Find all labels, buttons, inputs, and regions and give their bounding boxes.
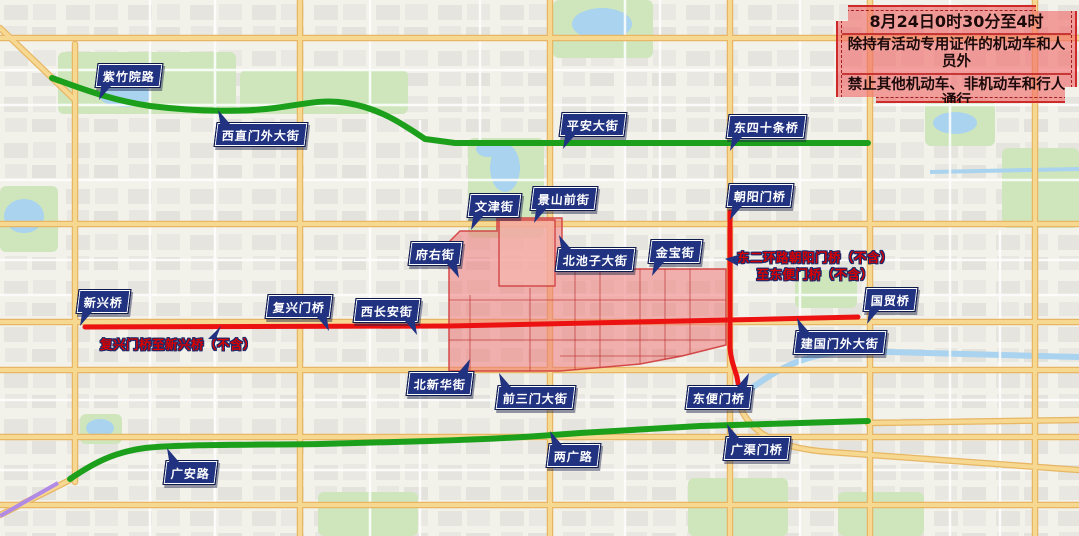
restriction-note-text: 至东便门桥（不含） — [737, 267, 893, 284]
road-label: 建国门外大街 — [794, 330, 886, 355]
forbidden-city-outline — [499, 220, 555, 286]
notice-line-2: 除持有活动专用证件的机动车和人员外 — [842, 33, 1071, 72]
road-label: 复兴门桥 — [266, 294, 332, 319]
road-label: 文津街 — [468, 193, 521, 218]
road-label: 两广路 — [547, 443, 600, 468]
road-label: 府右街 — [409, 241, 462, 266]
road-label: 景山前街 — [531, 186, 597, 211]
restriction-note-east-2nd-ring: 东二环路朝阳门桥（不含） 至东便门桥（不含） — [737, 250, 893, 284]
road-label: 新兴桥 — [77, 289, 130, 314]
road-label: 紫竹院路 — [96, 63, 162, 88]
restriction-note-text: 东二环路朝阳门桥（不含） — [737, 250, 893, 267]
road-label: 北新华街 — [407, 371, 473, 396]
notice-banner: 8月24日0时30分至4时 除持有活动专用证件的机动车和人员外 禁止其他机动车、… — [836, 5, 1077, 103]
restriction-note-text: 复兴门桥至新兴桥（不含） — [100, 337, 256, 354]
traffic-restriction-map: 紫竹院路 西直门外大街 平安大街 东四十条桥 朝阳门桥 文津街 景山前街 府右街… — [0, 0, 1079, 536]
notice-banner-frame: 8月24日0时30分至4时 除持有活动专用证件的机动车和人员外 禁止其他机动车、… — [841, 10, 1072, 98]
road-label: 平安大街 — [560, 112, 626, 137]
road-label: 广安路 — [164, 460, 217, 485]
road-label: 朝阳门桥 — [727, 183, 793, 208]
restriction-note-changan: 复兴门桥至新兴桥（不含） — [100, 337, 256, 354]
road-label: 西直门外大街 — [215, 122, 307, 147]
road-label: 西长安街 — [354, 298, 420, 323]
road-label: 东四十条桥 — [727, 114, 806, 139]
road-label: 国贸桥 — [864, 287, 917, 312]
road-label: 金宝街 — [649, 239, 702, 264]
road-label: 北池子大街 — [556, 247, 635, 272]
road-label: 前三门大街 — [496, 385, 575, 410]
notice-line-1: 8月24日0时30分至4时 — [842, 11, 1071, 33]
road-label: 东便门桥 — [686, 385, 752, 410]
road-label: 广渠门桥 — [724, 436, 790, 461]
